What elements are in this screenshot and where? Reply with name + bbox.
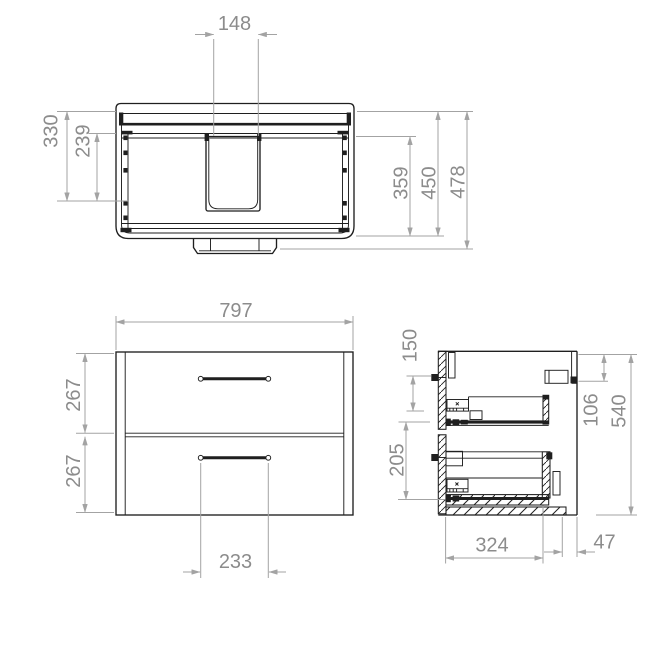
corner-block-right [347,113,351,126]
upper-drawer-handle [198,376,270,381]
top-view-runner-strip-left [121,131,133,233]
technical-drawing-page: 148 330 239 359 450 [0,0,671,671]
dim-label-106: 106 [581,393,603,426]
rear-fitting [553,472,560,496]
dim-label-239: 239 [73,124,95,157]
dim-cutout-offset-inner: 239 [73,124,117,201]
dim-label-330: 330 [41,114,63,147]
lower-drawer-handle [198,455,270,460]
front-apron-tab [194,239,277,254]
dim-label-797: 797 [219,300,252,322]
upper-drawer-section [446,395,549,426]
top-view-dimensions: 148 330 239 359 450 [41,13,474,249]
front-view: 797 267 267 233 [63,300,353,578]
dim-label-450: 450 [419,166,441,199]
dim-label-478: 478 [448,165,470,198]
dim-label-233: 233 [219,551,252,573]
dim-label-359: 359 [391,166,413,199]
side-view-dimensions: 150 205 106 540 [387,329,638,564]
dim-label-267-upper: 267 [63,378,85,411]
dim-rear-clearance: 47 [544,517,616,557]
front-view-dimensions: 797 267 267 233 [63,300,353,578]
side-view: 150 205 106 540 [387,329,638,564]
dim-label-150: 150 [400,329,422,362]
dim-upper-drawer-height: 267 [63,354,114,434]
dim-label-47: 47 [593,532,615,554]
dim-overall-height: 540 [579,355,638,516]
bottom-panel-section [446,507,566,515]
top-view-carcass [116,104,354,239]
wall-mount-bracket [545,370,577,383]
dim-label-148: 148 [218,13,251,35]
corner-block-left [119,113,123,126]
dim-handle-spacing: 233 [183,463,286,578]
dim-bracket-offset: 106 [579,355,609,427]
lower-slide-rail [446,497,549,500]
top-view: 148 330 239 359 450 [41,13,474,254]
upper-drawer-front-section [438,351,446,429]
front-top-bracket [449,353,456,379]
dim-interior-depth: 359 [356,137,416,237]
top-view-runner-strip-right [338,131,350,233]
dim-upper-runner-offset: 150 [400,329,432,411]
dim-cutout-width: 148 [195,13,277,136]
basin-cutout [205,133,262,211]
dim-label-324: 324 [475,535,508,557]
vanity-dimension-drawing: 148 330 239 359 450 [0,0,671,671]
dim-overall-width: 797 [116,300,353,350]
dim-label-205: 205 [387,443,409,476]
front-view-carcass [116,352,353,515]
dim-label-267-lower: 267 [63,454,85,487]
lower-drawer-front-section [438,435,446,514]
dim-lower-drawer-height: 267 [63,437,114,513]
lower-drawer-section [446,451,560,505]
dim-label-540: 540 [609,394,631,427]
